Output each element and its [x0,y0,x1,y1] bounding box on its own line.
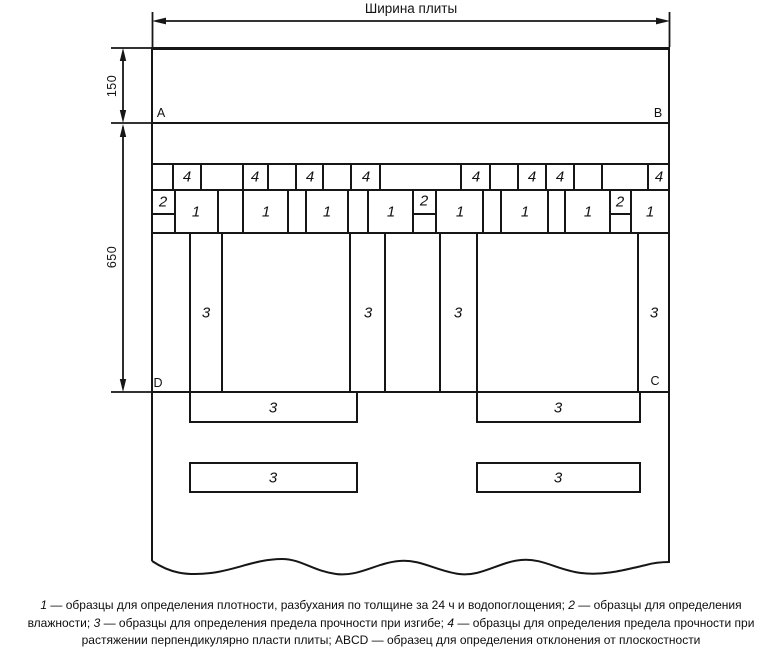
specimen-3-label: 3 [554,400,562,417]
cut-line [482,189,484,234]
specimen-1-label: 1 [262,204,270,221]
cut-line [517,163,519,191]
cut-line [564,189,566,234]
figure-caption: 1 — образцы для определения плотности, р… [0,597,782,650]
specimen-1-label: 1 [584,204,592,221]
cut-line [189,232,191,393]
specimen-2-label: 2 [159,194,167,211]
specimen-3-label: 3 [202,305,210,322]
specimen-4-label: 4 [472,169,480,186]
specimen-4-label: 4 [528,169,536,186]
specimen-4-label: 4 [251,169,259,186]
specimen-2-divider [610,213,631,215]
arrowhead-up-icon [120,48,126,61]
plate-right-edge [668,47,670,563]
cut-line [500,189,502,234]
cut-line [267,163,269,191]
dimension-overlay [0,0,782,654]
cut-line [242,163,244,191]
cut-line [174,189,176,234]
cut-line [609,189,611,234]
row1-top-line [152,189,670,191]
cut-line [367,189,369,234]
specimen-4-label: 4 [183,169,191,186]
dimension-150-label: 150 [105,75,119,97]
caption-line-2: влажности; 3 — образцы для определения п… [0,615,782,633]
caption-line-3: растяжении перпендикулярно пласти плиты;… [0,632,782,650]
specimen-1-label: 1 [521,204,529,221]
cut-line [647,163,649,191]
plate-top-edge [152,47,670,50]
arrowhead-down-icon [120,379,126,392]
plate-width-label: Ширина плиты [365,1,457,16]
cut-line [287,189,289,234]
specimen-1-label: 1 [387,204,395,221]
cut-line [547,189,549,234]
plate-left-edge [151,47,153,561]
cut-line [172,163,174,191]
arrowhead-left-icon [152,18,166,25]
strips-top-line [152,232,670,234]
specimen-2-divider [152,213,175,215]
cut-line [384,232,386,393]
cut-line [221,232,223,393]
specimen-3-label: 3 [269,470,277,487]
cut-line [217,189,219,234]
cut-line [349,232,351,393]
cut-line [439,232,441,393]
cut-line [322,163,324,191]
row4-top-line [152,163,670,165]
cut-line [545,163,547,191]
cut-line [305,189,307,234]
specimen-3-label: 3 [454,305,462,322]
specimen-1-label: 1 [323,204,331,221]
corner-b: B [654,106,662,120]
specimen-2-divider [413,213,436,215]
cut-line [295,163,297,191]
cut-line [573,163,575,191]
corner-c: C [650,374,659,388]
specimen-1-label: 1 [456,204,464,221]
cut-line [476,232,478,393]
specimen-3-label: 3 [554,470,562,487]
cut-line [637,232,639,393]
arrowhead-up-icon [120,124,126,137]
arrowhead-down-icon [120,110,126,123]
cut-line [350,163,352,191]
dimension-650-label: 650 [105,246,119,268]
specimen-2-label: 2 [616,194,624,211]
cut-line [347,189,349,234]
cut-line [435,189,437,234]
break-wavy-line [152,559,670,574]
specimen-4-label: 4 [655,169,663,186]
caption-line-1: 1 — образцы для определения плотности, р… [0,597,782,615]
corner-d: D [153,376,162,390]
specimen-3-label: 3 [650,305,658,322]
specimen-4-label: 4 [306,169,314,186]
cut-line [630,189,632,234]
corner-a: A [157,106,165,120]
cut-line [601,163,603,191]
arrowhead-right-icon [656,18,670,25]
cut-line [242,189,244,234]
cut-line [412,189,414,234]
specimen-3-label: 3 [269,400,277,417]
cut-line [489,163,491,191]
cut-line [379,163,381,191]
specimen-4-label: 4 [556,169,564,186]
specimen-1-label: 1 [646,204,654,221]
specimen-cutting-diagram: Ширина плиты 150 650 A B D C [0,0,782,654]
line-ab [152,122,670,124]
specimen-2-label: 2 [420,193,428,210]
cut-line [460,163,462,191]
specimen-4-label: 4 [362,169,370,186]
cut-line [200,163,202,191]
specimen-3-label: 3 [364,305,372,322]
specimen-1-label: 1 [192,204,200,221]
